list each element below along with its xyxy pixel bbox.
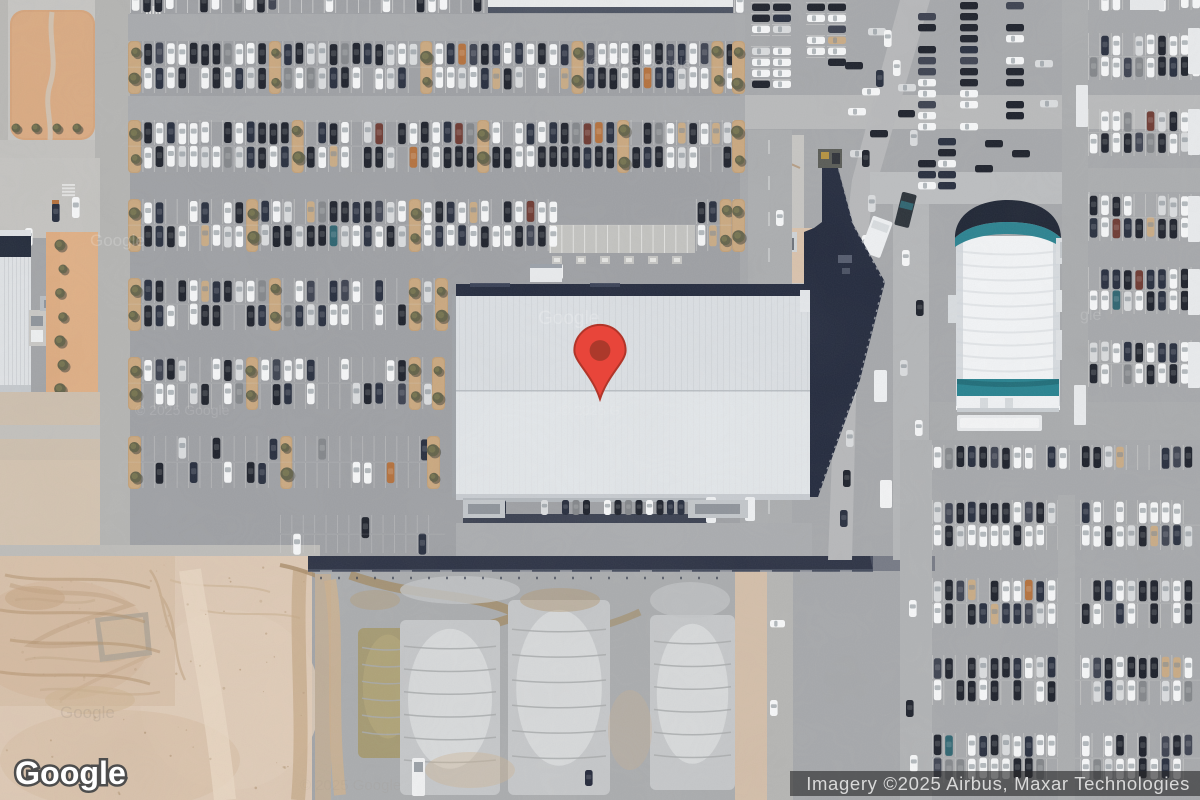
svg-text:Google: Google <box>15 755 126 791</box>
